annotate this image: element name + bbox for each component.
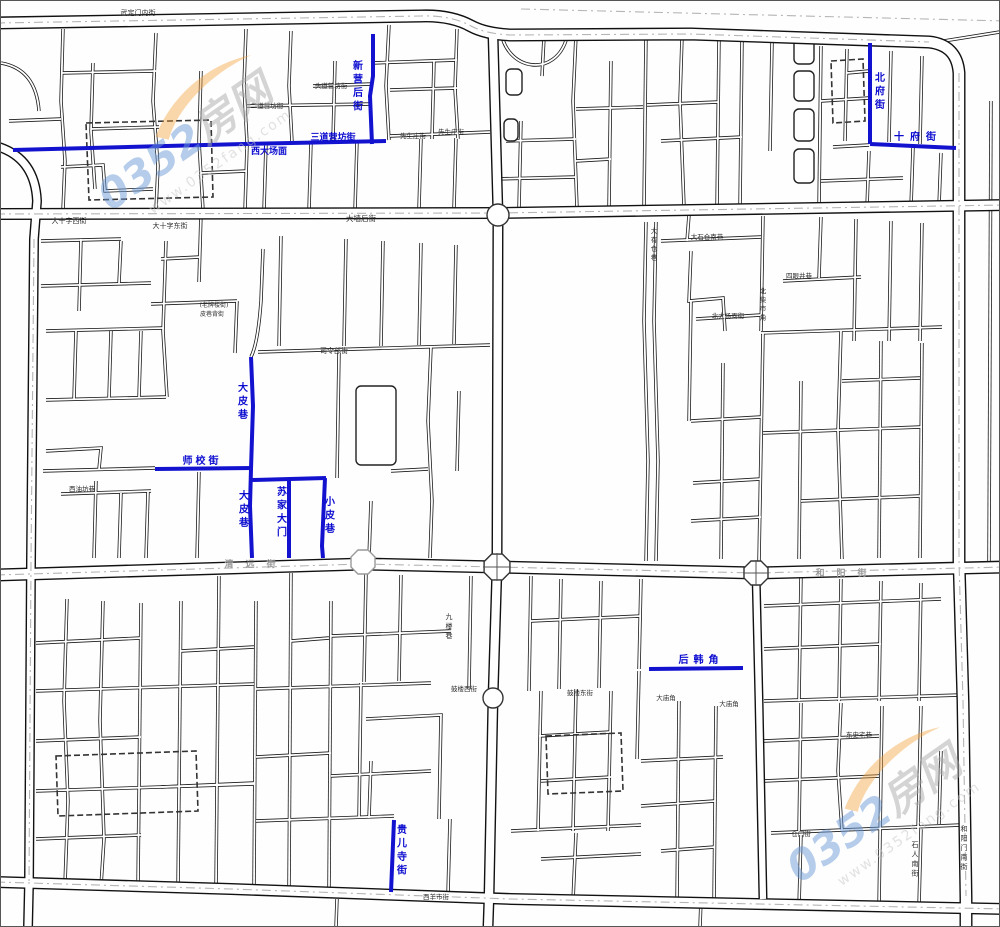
highlighted-street <box>251 357 253 469</box>
street-label: 九楼巷 <box>446 612 453 640</box>
street-label: 北府街 <box>874 71 885 111</box>
street-label: 头道营坊街 <box>315 81 348 90</box>
minor-street <box>764 644 881 649</box>
street-label: 先生庄街 <box>400 131 427 140</box>
minor-street <box>366 715 441 819</box>
major-road <box>756 573 763 899</box>
street-label: 东史宅巷 <box>846 730 873 739</box>
street-label: 大石仓南巷 <box>691 232 724 241</box>
minor-street <box>1 63 39 111</box>
street-label: 大皮巷 <box>238 489 250 529</box>
minor-street <box>36 684 254 691</box>
street-label: 小皮巷 <box>324 495 336 535</box>
street-label: 和阳门南街 <box>961 824 968 871</box>
minor-street <box>764 695 961 701</box>
street-label: 后韩角 <box>679 653 724 666</box>
street-label: 西油坊巷 <box>69 484 96 493</box>
minor-street <box>91 63 95 189</box>
minor-street <box>531 616 641 621</box>
street-label: 大皮巷 <box>237 381 249 421</box>
minor-street <box>761 327 942 333</box>
street-label: 贵儿寺街 <box>396 823 407 877</box>
minor-street <box>511 825 641 831</box>
minor-street <box>366 715 441 819</box>
map-image: 新营后街三道营坊街西大场面北府街十府街大皮巷师校街大皮巷苏家大门小皮巷后韩角贵儿… <box>0 0 1000 927</box>
highlighted-street <box>370 34 373 144</box>
minor-street <box>331 631 451 636</box>
building-block <box>794 109 814 141</box>
minor-street <box>763 427 921 433</box>
minor-street <box>36 638 141 643</box>
minor-street <box>541 854 641 859</box>
street-label: 大十字东街 <box>153 221 188 230</box>
street-label: 大墙后街 <box>346 213 376 223</box>
building-blocks <box>356 36 814 465</box>
street-label: 师校街 <box>183 454 222 467</box>
street-label: 四眼井巷 <box>786 271 813 280</box>
major-road <box>1 882 1000 909</box>
highlighted-street <box>391 820 394 892</box>
street-label: 苏家大门 <box>277 485 288 539</box>
minor-street <box>256 816 394 821</box>
road-centerline <box>521 9 1000 21</box>
street-label: (老牌楼街) <box>200 301 229 309</box>
street-label: 和阳街 <box>814 567 878 579</box>
highlighted-street <box>870 144 956 148</box>
street-label: 北柴市角 <box>760 287 767 321</box>
building-block <box>504 119 518 141</box>
street-label: 清远街 <box>224 558 287 570</box>
minor-street <box>331 771 431 776</box>
street-label: 三道营坊街 <box>310 131 355 143</box>
minor-street <box>764 599 941 606</box>
dashed-block <box>56 751 198 816</box>
building-block <box>506 69 522 95</box>
street-label: 大庙角 <box>656 693 676 702</box>
building-block <box>794 71 814 101</box>
street-label: 石人南街 <box>912 841 919 877</box>
street-label: 北大场面街 <box>712 311 745 320</box>
street-label: 大庙角 <box>719 699 739 708</box>
street-label: 大十字西街 <box>52 216 87 225</box>
minor-street <box>256 683 431 689</box>
roundabout-circle <box>487 204 509 226</box>
street-label: 大有仓巷 <box>651 226 658 261</box>
highlighted-street <box>155 468 253 469</box>
building-block <box>794 149 814 183</box>
building-block <box>356 386 396 465</box>
street-label: 西大场面 <box>251 145 287 157</box>
street-label: 西羊市街 <box>423 892 450 901</box>
street-label: 武定门内街 <box>121 8 156 17</box>
roundabout-octagon <box>351 550 375 574</box>
street-label: 司令部街 <box>320 346 348 355</box>
highlighted-street <box>250 469 252 558</box>
street-label: 皮巷背街 <box>200 310 224 318</box>
street-label: 鼓楼东街 <box>567 688 594 697</box>
highlighted-street <box>649 668 743 669</box>
city-street-map: 新营后街三道营坊街西大场面北府街十府街大皮巷师校街大皮巷苏家大门小皮巷后韩角贵儿… <box>1 1 1000 927</box>
street-label: 十府街 <box>894 130 942 143</box>
minor-street <box>258 345 490 352</box>
roundabout-circle <box>483 688 503 708</box>
street-label: 先生庄街 <box>438 127 465 136</box>
minor-street <box>336 899 337 927</box>
minor-street <box>801 496 920 501</box>
street-label: 鼓楼西街 <box>451 684 478 693</box>
